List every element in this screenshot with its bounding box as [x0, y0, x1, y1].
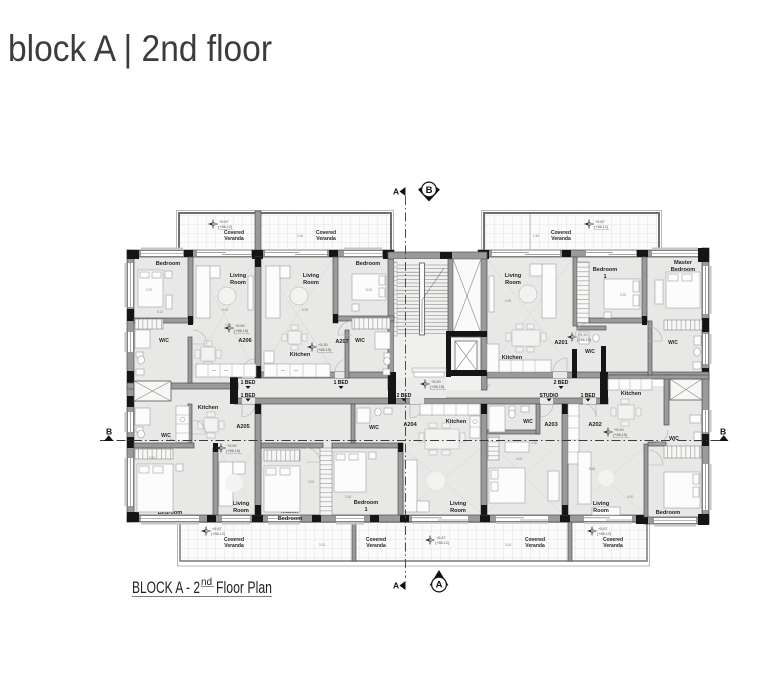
svg-text:B: B [426, 185, 433, 196]
svg-text:Veranda: Veranda [603, 543, 623, 549]
svg-text:(+86.12): (+86.12) [435, 541, 450, 545]
svg-text:Living: Living [450, 501, 467, 507]
svg-text:Floor Plan: Floor Plan [216, 579, 272, 597]
svg-text:(+86.12): (+86.12) [218, 225, 233, 229]
svg-text:3.20: 3.20 [308, 480, 315, 484]
svg-text:Kitchen: Kitchen [290, 352, 311, 358]
svg-text:6.25: 6.25 [302, 308, 309, 312]
svg-text:Room: Room [450, 508, 466, 514]
svg-text:W/C: W/C [585, 349, 595, 355]
svg-text:A207: A207 [335, 339, 348, 345]
svg-text:W/C: W/C [669, 436, 679, 442]
svg-text:1: 1 [364, 507, 367, 513]
svg-text:Room: Room [303, 280, 319, 286]
svg-text:A: A [393, 581, 399, 591]
svg-text:B: B [106, 427, 112, 437]
svg-text:2.46: 2.46 [533, 234, 540, 238]
svg-text:Bedroom: Bedroom [656, 510, 681, 516]
svg-text:A206: A206 [238, 338, 251, 344]
svg-text:+5.87: +5.87 [598, 527, 608, 531]
svg-text:A: A [393, 187, 399, 197]
svg-text:4.95: 4.95 [505, 299, 512, 303]
svg-text:Living: Living [303, 273, 320, 279]
svg-text:Room: Room [233, 508, 249, 514]
svg-text:STUDIO: STUDIO [540, 393, 559, 399]
svg-text:4.25: 4.25 [225, 323, 232, 327]
svg-text:A203: A203 [544, 422, 557, 428]
svg-text:Living: Living [230, 273, 247, 279]
svg-text:1 BED: 1 BED [241, 380, 256, 386]
svg-text:1.40: 1.40 [167, 438, 174, 442]
svg-text:Room: Room [593, 508, 609, 514]
svg-text:+5.87: +5.87 [595, 220, 605, 224]
svg-text:5.96: 5.96 [589, 467, 596, 471]
svg-text:A: A [436, 580, 443, 591]
svg-text:Master: Master [674, 260, 693, 266]
svg-text:Veranda: Veranda [525, 543, 545, 549]
svg-text:BLOCK A - 2: BLOCK A - 2 [132, 579, 200, 597]
svg-text:+5.90: +5.90 [227, 444, 237, 448]
svg-text:1.97: 1.97 [484, 384, 491, 388]
svg-text:2.90: 2.90 [149, 456, 156, 460]
svg-text:Living: Living [593, 501, 610, 507]
svg-text:3.20: 3.20 [620, 293, 627, 297]
svg-text:2 BED: 2 BED [554, 380, 569, 386]
svg-text:(+86.15): (+86.15) [430, 385, 445, 389]
svg-text:W/C: W/C [159, 338, 169, 344]
svg-text:Kitchen: Kitchen [198, 405, 219, 411]
svg-text:3.00: 3.00 [319, 543, 326, 547]
svg-text:B: B [720, 427, 726, 437]
svg-text:1 BED: 1 BED [581, 393, 596, 399]
svg-text:(+86.15): (+86.15) [317, 348, 332, 352]
svg-text:1 BED: 1 BED [241, 393, 256, 399]
svg-text:2.48: 2.48 [345, 495, 352, 499]
svg-text:3.00: 3.00 [505, 543, 512, 547]
svg-text:+5.30: +5.30 [318, 343, 328, 347]
svg-text:(+86.12): (+86.12) [594, 225, 609, 229]
svg-text:W/C: W/C [369, 425, 379, 431]
svg-text:A201: A201 [554, 340, 567, 346]
svg-text:+5.87: +5.87 [436, 536, 446, 540]
svg-text:(+86.15): (+86.15) [226, 449, 241, 453]
svg-text:+5.90: +5.90 [578, 333, 588, 337]
svg-text:+5.90: +5.90 [614, 428, 624, 432]
svg-text:A205: A205 [236, 424, 249, 430]
svg-text:(+86.15): (+86.15) [577, 338, 592, 342]
svg-text:Room: Room [230, 280, 246, 286]
svg-text:+5.87: +5.87 [219, 220, 229, 224]
svg-text:+5.87: +5.87 [212, 527, 222, 531]
svg-text:Veranda: Veranda [224, 236, 244, 242]
svg-text:2.46: 2.46 [297, 234, 304, 238]
svg-text:3.70: 3.70 [146, 288, 153, 292]
svg-text:Kitchen: Kitchen [621, 391, 642, 397]
svg-text:+5.90: +5.90 [431, 380, 441, 384]
svg-text:A202: A202 [588, 422, 601, 428]
svg-text:Veranda: Veranda [224, 543, 244, 549]
svg-text:Bedroom: Bedroom [354, 500, 379, 506]
svg-text:Bedroom: Bedroom [156, 261, 181, 267]
svg-text:Veranda: Veranda [366, 543, 386, 549]
svg-text:Veranda: Veranda [316, 236, 336, 242]
svg-text:5.40: 5.40 [222, 308, 229, 312]
svg-text:5.30: 5.30 [366, 288, 373, 292]
svg-text:W/C: W/C [523, 419, 533, 425]
svg-text:2 BED: 2 BED [397, 393, 412, 399]
svg-text:W/C: W/C [668, 340, 678, 346]
svg-text:4.00: 4.00 [516, 457, 523, 461]
svg-text:+5.90: +5.90 [235, 324, 245, 328]
svg-text:Bedroom: Bedroom [278, 516, 303, 522]
svg-text:(+86.15): (+86.15) [234, 329, 249, 333]
svg-text:Bedroom: Bedroom [593, 267, 618, 273]
svg-text:(+86.12): (+86.12) [597, 532, 612, 536]
svg-text:4.00: 4.00 [627, 495, 634, 499]
svg-text:(+86.12): (+86.12) [211, 532, 226, 536]
svg-text:block A | 2nd floor: block A | 2nd floor [8, 28, 272, 69]
svg-text:1 BED: 1 BED [334, 380, 349, 386]
svg-text:4.30: 4.30 [531, 441, 538, 445]
svg-text:W/C: W/C [355, 338, 365, 344]
svg-text:Living: Living [233, 501, 250, 507]
svg-text:Room: Room [505, 280, 521, 286]
svg-text:Bedroom: Bedroom [356, 261, 381, 267]
svg-text:(+86.15): (+86.15) [613, 433, 628, 437]
svg-text:5.20: 5.20 [157, 310, 164, 314]
svg-text:Veranda: Veranda [551, 236, 571, 242]
svg-text:Living: Living [505, 273, 522, 279]
